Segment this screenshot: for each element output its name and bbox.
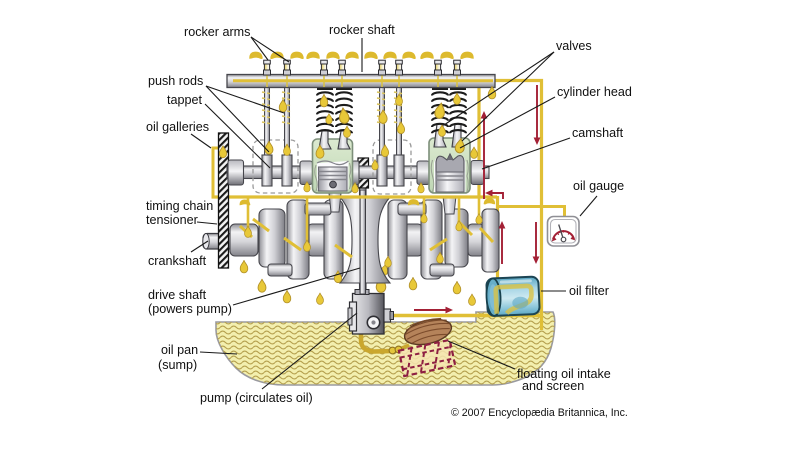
svg-text:rocker shaft: rocker shaft (329, 23, 395, 37)
svg-text:oil galleries: oil galleries (146, 120, 209, 134)
svg-text:drive shaft: drive shaft (148, 288, 207, 302)
svg-text:rocker arms: rocker arms (184, 25, 250, 39)
svg-text:crankshaft: crankshaft (148, 254, 207, 268)
svg-text:(sump): (sump) (158, 358, 197, 372)
svg-text:tappet: tappet (167, 93, 203, 107)
svg-text:(powers pump): (powers pump) (148, 302, 232, 316)
svg-text:© 2007 Encyclopædia Britannica: © 2007 Encyclopædia Britannica, Inc. (451, 407, 628, 419)
svg-text:cylinder head: cylinder head (557, 85, 632, 99)
svg-text:oil filter: oil filter (569, 284, 609, 298)
svg-text:camshaft: camshaft (572, 126, 624, 140)
svg-text:oil pan: oil pan (161, 343, 198, 357)
svg-text:and screen: and screen (522, 379, 584, 393)
svg-text:oil gauge: oil gauge (573, 179, 624, 193)
svg-text:tensioner: tensioner (146, 213, 198, 227)
svg-text:timing chain: timing chain (146, 199, 213, 213)
svg-text:pump (circulates oil): pump (circulates oil) (200, 391, 313, 405)
svg-text:valves: valves (556, 39, 592, 53)
svg-text:push rods: push rods (148, 74, 203, 88)
